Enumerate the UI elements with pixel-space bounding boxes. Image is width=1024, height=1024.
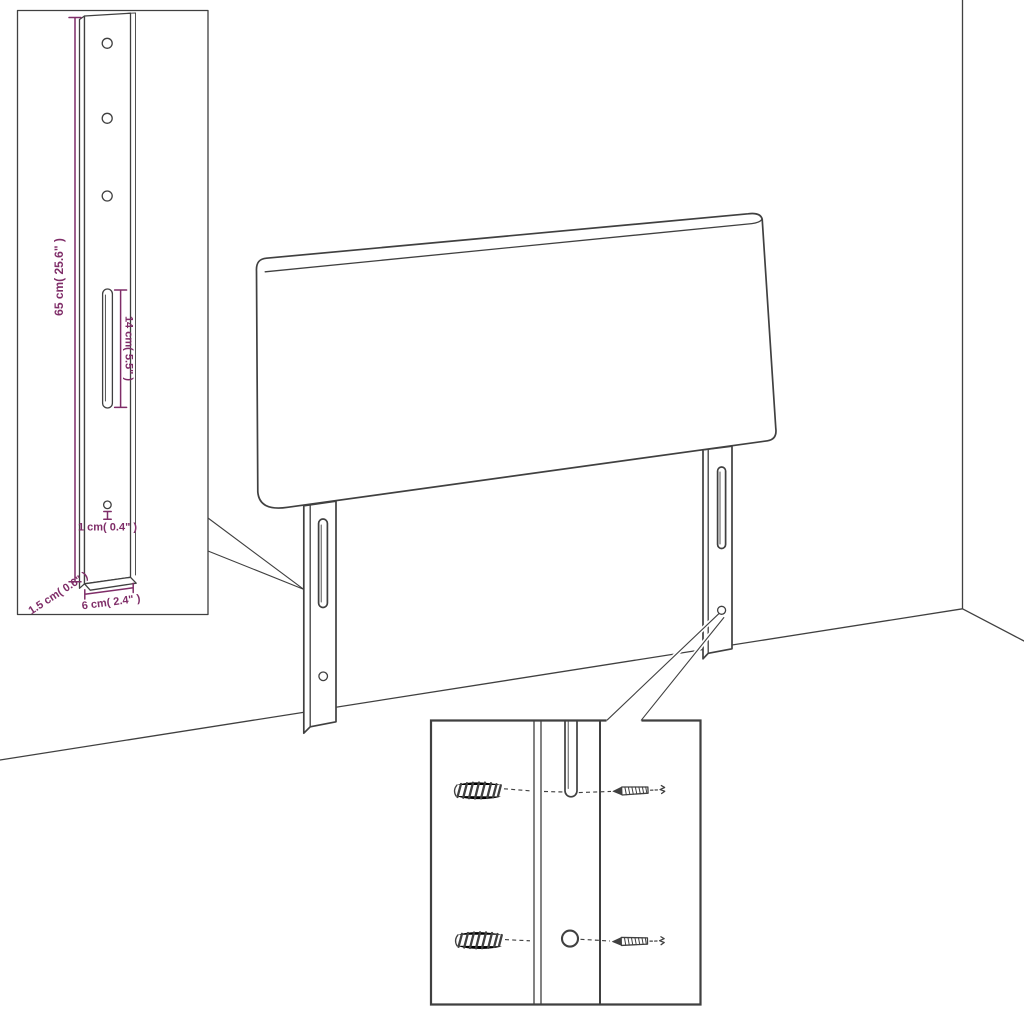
diagram-page: 65 cm( 25.6" ) 14 cm( 5.5" ) 1 cm( 0.4" …	[0, 0, 1024, 1024]
dimension-65cm-label: 65 cm( 25.6" )	[52, 238, 66, 316]
dimension-14cm-label: 14 cm( 5.5" )	[123, 316, 135, 381]
inset-mounting-hardware	[431, 721, 701, 1005]
diagram-canvas: 65 cm( 25.6" ) 14 cm( 5.5" ) 1 cm( 0.4" …	[0, 0, 1024, 1024]
left-inset-callout-lines	[208, 518, 304, 589]
headboard-panel	[256, 214, 776, 509]
dimension-1cm-label: 1 cm( 0.4" )	[78, 522, 137, 534]
inset-leg-side-face	[80, 16, 85, 588]
headboard-face	[256, 214, 776, 509]
headboard-left-leg	[304, 501, 336, 733]
left-leg-body	[304, 501, 336, 733]
inset-leg-dimensions: 65 cm( 25.6" ) 14 cm( 5.5" ) 1 cm( 0.4" …	[18, 11, 209, 618]
inset-leg-front-face	[85, 13, 131, 584]
floor-line-right	[963, 609, 1024, 641]
